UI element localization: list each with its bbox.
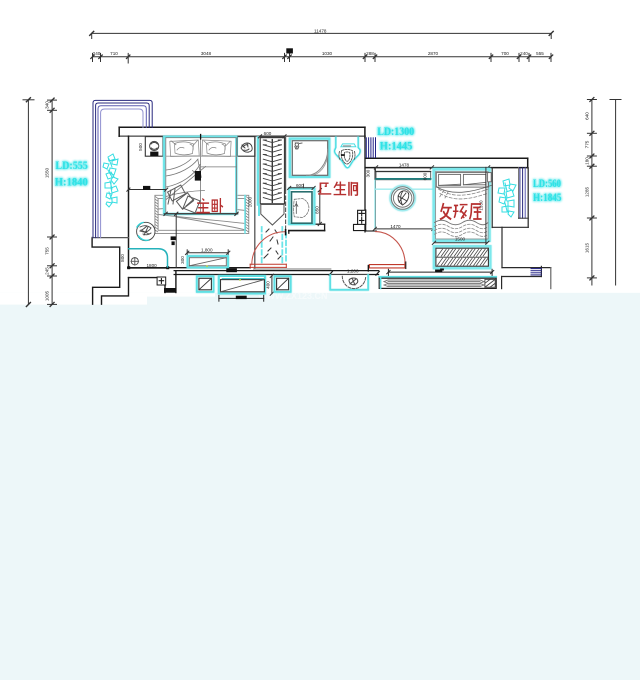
svg-text:LD:1300: LD:1300 [377, 126, 414, 138]
svg-text:600: 600 [264, 131, 272, 136]
svg-text:11478: 11478 [314, 28, 327, 33]
svg-text:500: 500 [138, 143, 143, 151]
svg-text:3048: 3048 [201, 51, 212, 56]
svg-text:1350: 1350 [479, 200, 484, 211]
svg-text:LD:555: LD:555 [55, 160, 88, 172]
svg-text:755: 755 [45, 247, 50, 255]
svg-text:1030: 1030 [322, 51, 333, 56]
svg-text:1478: 1478 [399, 163, 410, 168]
svg-text:300: 300 [365, 169, 370, 177]
svg-text:800: 800 [120, 254, 125, 262]
svg-text:1,200: 1,200 [347, 269, 359, 274]
svg-text:600: 600 [296, 183, 304, 188]
svg-text:180: 180 [584, 157, 589, 165]
svg-text:2870: 2870 [428, 51, 439, 56]
svg-text:1615: 1615 [584, 242, 589, 253]
svg-text:1285: 1285 [584, 186, 589, 197]
svg-text:300: 300 [180, 256, 185, 264]
svg-text:600: 600 [423, 172, 428, 180]
svg-text:WWW.ZX123.CN: WWW.ZX123.CN [258, 291, 328, 301]
svg-text:700: 700 [501, 51, 509, 56]
svg-text:1800: 1800 [147, 263, 158, 268]
svg-text:H:1445: H:1445 [380, 141, 413, 153]
svg-text:LD:560: LD:560 [533, 178, 561, 190]
svg-text:1005: 1005 [45, 290, 50, 301]
svg-text:775: 775 [584, 140, 589, 148]
svg-text:340: 340 [45, 101, 50, 109]
svg-text:1500: 1500 [455, 237, 466, 242]
svg-text:1470: 1470 [390, 224, 401, 229]
svg-text:1,800: 1,800 [201, 248, 213, 253]
svg-text:710: 710 [110, 51, 118, 56]
svg-text:400: 400 [265, 281, 270, 289]
svg-text:H:1840: H:1840 [55, 176, 88, 188]
svg-text:240: 240 [520, 51, 528, 56]
svg-text:555: 555 [536, 51, 544, 56]
svg-text:240: 240 [93, 51, 101, 56]
svg-text:1550: 1550 [45, 167, 50, 178]
svg-text:H:1845: H:1845 [533, 192, 562, 204]
svg-text:288: 288 [366, 51, 374, 56]
svg-text:245: 245 [45, 267, 50, 275]
svg-text:2000: 2000 [248, 196, 253, 207]
svg-text:640: 640 [584, 112, 589, 120]
svg-text:850: 850 [315, 206, 320, 214]
